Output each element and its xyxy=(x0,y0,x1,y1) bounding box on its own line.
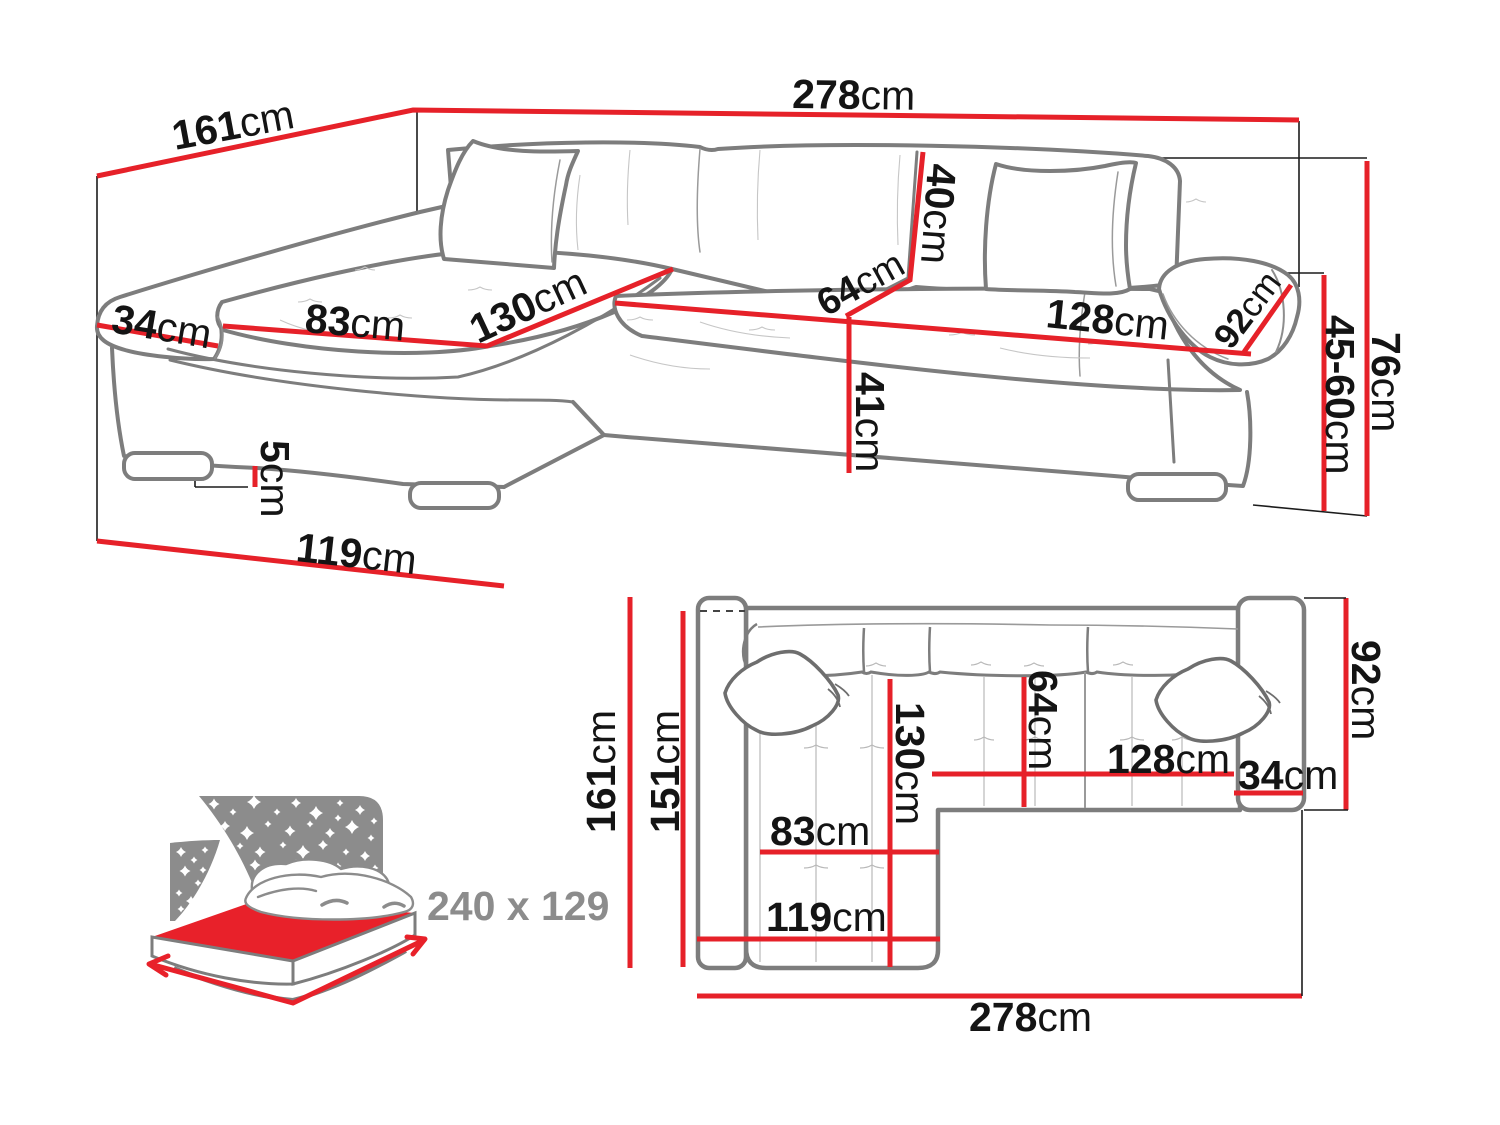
svg-text:92cm: 92cm xyxy=(1343,640,1389,740)
svg-text:278cm: 278cm xyxy=(969,994,1092,1040)
svg-text:128cm: 128cm xyxy=(1107,736,1230,782)
svg-text:278cm: 278cm xyxy=(792,71,916,119)
svg-text:76cm: 76cm xyxy=(1363,332,1409,432)
svg-text:40cm: 40cm xyxy=(912,162,965,265)
svg-text:41cm: 41cm xyxy=(847,372,893,472)
svg-text:83cm: 83cm xyxy=(303,295,407,350)
svg-text:64cm: 64cm xyxy=(1020,670,1066,770)
svg-text:119cm: 119cm xyxy=(766,894,887,940)
svg-text:119cm: 119cm xyxy=(294,524,419,583)
svg-text:34cm: 34cm xyxy=(1238,752,1338,798)
svg-text:130cm: 130cm xyxy=(887,702,933,825)
svg-text:83cm: 83cm xyxy=(770,808,870,854)
svg-text:5cm: 5cm xyxy=(252,440,298,517)
svg-text:151cm: 151cm xyxy=(642,710,688,833)
svg-text:240 x 129: 240 x 129 xyxy=(427,883,609,929)
svg-text:45-60cm: 45-60cm xyxy=(1317,315,1363,475)
svg-text:161cm: 161cm xyxy=(578,710,624,833)
